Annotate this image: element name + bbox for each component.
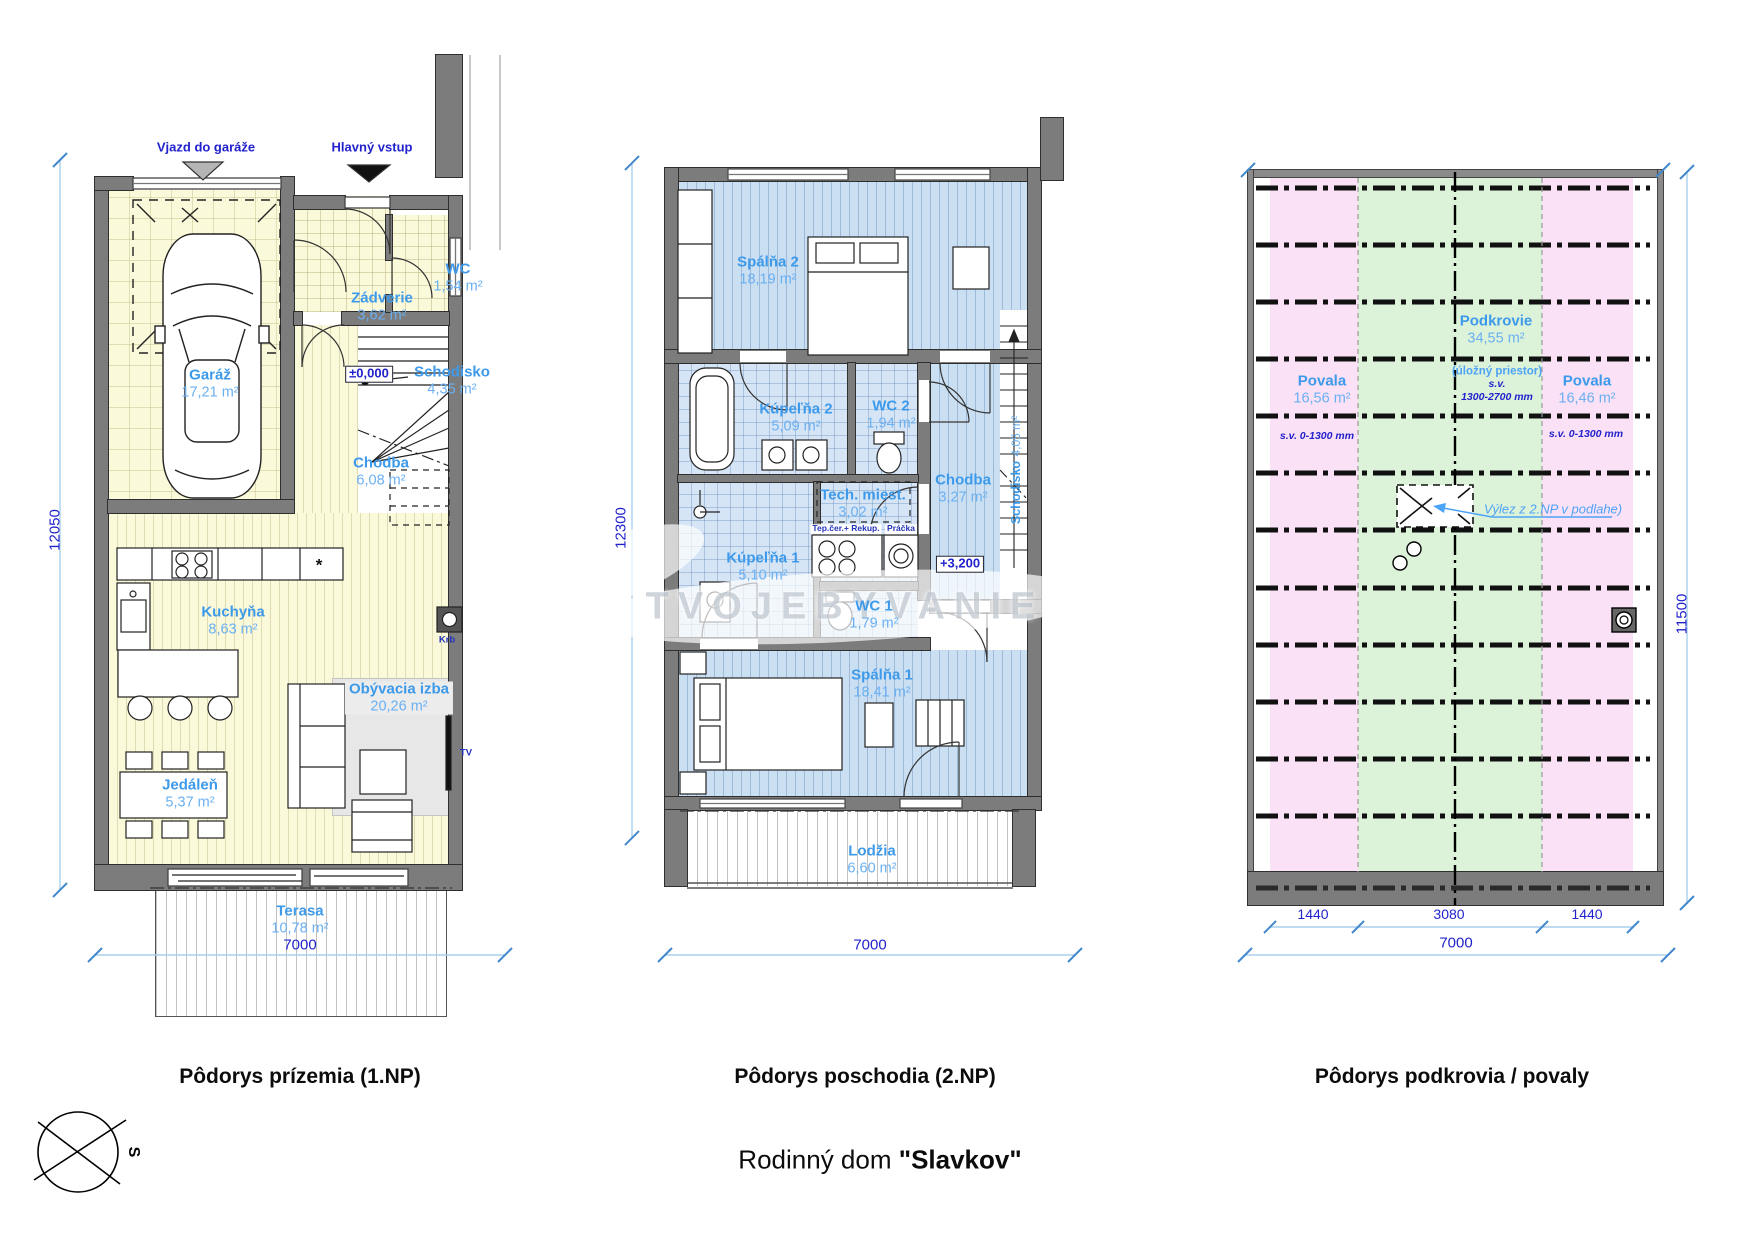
- room-label-spalna1: Spálňa 1 18,41 m²: [851, 667, 913, 700]
- room-label-zadverie: Zádverie 3,62 m²: [351, 290, 413, 323]
- wall: [1658, 170, 1663, 905]
- plan2-title: Pôdorys poschodia (2.NP): [734, 1065, 995, 1089]
- wall: [281, 177, 294, 513]
- wall: [449, 196, 462, 890]
- heatpump-label: Tep.čer.+ Rekup.: [810, 524, 881, 534]
- room-label-wc1: WC 1 1,79 m²: [849, 598, 898, 631]
- room-label-jedalen: Jedáleň 5,37 m²: [162, 777, 218, 810]
- hatch-annotation: Výlez z 2.NP v podlahe): [1484, 503, 1622, 518]
- room-label-wc: WC 1,54 m²: [433, 261, 482, 294]
- clearance-label-center: 1300-2700 mm: [1461, 392, 1533, 404]
- zone-label-povala-left: Povala 16,56 m²: [1293, 373, 1350, 406]
- room-label-terasa: Terasa 10,78 m²: [271, 903, 328, 936]
- wall: [665, 168, 1041, 181]
- room-label-chodba1: Chodba 6,08 m²: [353, 455, 409, 488]
- room-label-spalna2: Spálňa 2 18,19 m²: [737, 254, 799, 287]
- clearance-label-center-sv: s.v.: [1489, 379, 1506, 391]
- wall: [294, 312, 302, 325]
- wall: [95, 177, 108, 890]
- room-label-garaz: Garáž 17,21 m²: [181, 367, 238, 400]
- wall: [95, 865, 462, 890]
- plan3-title: Pôdorys podkrovia / povaly: [1315, 1065, 1589, 1089]
- attic-storage-left-zone: [1270, 178, 1358, 872]
- room-label-wc2: WC 2 1,94 m²: [866, 398, 915, 431]
- wall: [665, 168, 678, 810]
- sheet-title-prefix: Rodinný dom: [738, 1144, 891, 1174]
- zone-label-podkrovie: Podkrovie 34,55 m²: [1460, 313, 1533, 346]
- room-label-chodba2: Chodba 3,27 m²: [935, 472, 991, 505]
- room-label-lodzia: Lodžia 6,60 m²: [847, 843, 896, 876]
- floorplan-sheet: TVOJEBYVANIE Vjazd do garáže Hlavný vstu…: [0, 0, 1754, 1241]
- main-entry-label: Hlavný vstup: [332, 141, 413, 156]
- sheet-title-name: "Slavkov": [899, 1144, 1022, 1174]
- level-marker-floor2: +3,200: [936, 556, 984, 573]
- dim-plan3-seg3: 1440: [1571, 907, 1602, 923]
- party-wall-pier: [1041, 118, 1063, 180]
- garage-entry-label: Vjazd do garáže: [157, 141, 255, 156]
- tv-label: TV: [460, 749, 472, 760]
- level-marker-ground: ±0,000: [345, 366, 393, 383]
- dim-plan1-height: 12050: [48, 509, 65, 551]
- wall: [848, 363, 855, 475]
- room-label-kupelna2: Kúpeľňa 2 5,09 m²: [759, 401, 832, 434]
- watermark-text: TVOJEBYVANIE: [646, 586, 1045, 629]
- wall: [1248, 170, 1663, 177]
- bedroom2-floor: [678, 181, 1028, 350]
- sheet-title: Rodinný dom "Slavkov": [738, 1145, 1021, 1174]
- wall: [95, 177, 133, 190]
- wall: [678, 475, 918, 482]
- wall: [1248, 872, 1663, 905]
- wall: [918, 363, 930, 600]
- wall: [390, 196, 449, 209]
- plan1-title: Pôdorys prízemia (1.NP): [179, 1065, 421, 1089]
- clearance-label-right: s.v. 0-1300 mm: [1549, 429, 1623, 441]
- wall: [665, 350, 1041, 363]
- dim-plan1-width: 7000: [283, 938, 316, 955]
- garage-floor: [108, 190, 281, 513]
- room-label-schodisko1: Schodisko 4,35 m²: [414, 364, 490, 397]
- room-label-tech: Tech. miest. 3,02 m²: [820, 487, 906, 520]
- dim-plan3-seg2: 3080: [1433, 907, 1464, 923]
- washer-label: Práčka: [885, 524, 917, 534]
- podkrovie-note: (úložný priestor): [1452, 366, 1542, 379]
- wall: [386, 215, 392, 260]
- dim-plan3-width: 7000: [1439, 936, 1472, 953]
- room-label-kupelna1: Kúpeľňa 1 5,10 m²: [726, 550, 799, 583]
- dim-plan3-seg1: 1440: [1297, 907, 1328, 923]
- dim-plan3-height: 11500: [1675, 594, 1692, 635]
- attic-storage-right-zone: [1542, 178, 1633, 872]
- zone-label-povala-right: Povala 16,46 m²: [1558, 373, 1615, 406]
- stair-floor: [358, 325, 449, 530]
- wall: [1248, 170, 1253, 905]
- fireplace-label: Krb: [439, 636, 455, 647]
- room-label-schodisko2: Schodisko 4,05 m²: [1007, 416, 1025, 524]
- clearance-label-left: s.v. 0-1300 mm: [1280, 431, 1354, 443]
- wall: [665, 797, 1041, 810]
- garage-entry-arrow-icon: [183, 162, 223, 180]
- room-label-kuchyna: Kuchyňa 8,63 m²: [201, 604, 264, 637]
- wall: [1013, 810, 1035, 886]
- wall: [1028, 168, 1041, 810]
- wall: [665, 810, 687, 886]
- kitchen-star-marker: *: [316, 555, 323, 574]
- compass-north-label: S: [124, 1147, 142, 1158]
- dim-plan2-width: 7000: [853, 938, 886, 955]
- main-entry-arrow-icon: [348, 165, 390, 182]
- party-wall-pier: [436, 55, 462, 177]
- wall: [108, 500, 294, 513]
- room-label-obyvacia: Obývacia izba 20,26 m²: [345, 681, 453, 714]
- compass-icon: [34, 1112, 126, 1192]
- dim-plan2-height: 12300: [614, 507, 631, 549]
- attic-center-zone: [1358, 178, 1542, 872]
- wall: [294, 196, 345, 209]
